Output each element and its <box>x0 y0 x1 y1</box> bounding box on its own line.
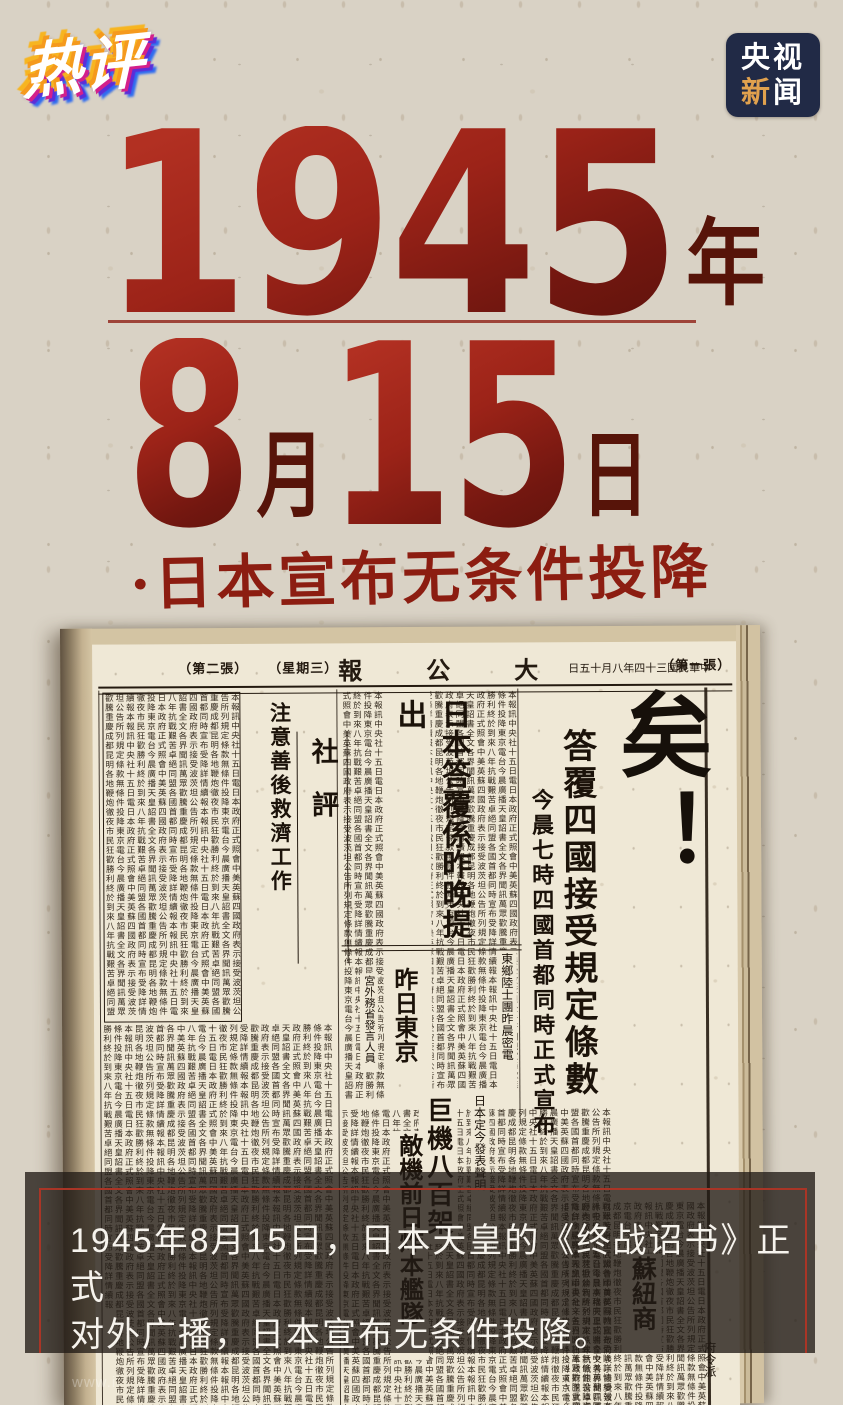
badge-line-1: 央视 <box>741 41 805 75</box>
editorial-box: 本報訊中央社十五日電日本政府正式照會中美英蘇四國政府表示接受波茨坦公告所列規定條… <box>102 692 242 1023</box>
caption-text: 1945年8月15日，日本天皇的《终战诏书》正式 对外广播，日本宣布无条件投降。 <box>70 1218 815 1359</box>
mid-rule <box>342 944 522 951</box>
subtitle-calligraphy: ·日本宣布无条件投降 <box>129 523 791 622</box>
masthead-title: 報公大 <box>338 650 602 686</box>
cctv-news-badge: 央视 新闻 <box>726 33 820 117</box>
masthead-sheet-one: （第一張） <box>661 654 731 673</box>
day-suffix: 日 <box>581 430 649 524</box>
masthead-weekday: （星期三） <box>268 657 338 676</box>
main-headline: 日本投降矣！ <box>592 687 740 1253</box>
caption-overlay: 1945年8月15日，日本天皇的《终战诏书》正式 对外广播，日本宣布无条件投降。 <box>25 1172 815 1353</box>
newsprint-filler: 本報訊中央社十五日電日本政府正式照會中美英蘇四國政府表示接受波茨坦公告所列規定條… <box>103 693 241 1022</box>
mid-small-col: 宮外務省發言人員 <box>360 973 379 1072</box>
caption-line-2: 对外广播，日本宣布无条件投降。 <box>70 1312 815 1359</box>
editorial-headline: 注意善後救濟工作 <box>264 702 295 952</box>
wire-small-col: 東鄉陸士團昨晨密電 <box>498 950 518 1119</box>
month-suffix: 月 <box>257 430 325 524</box>
month-number: 8 <box>126 338 249 538</box>
caption-line-1: 1945年8月15日，日本天皇的《终战诏书》正式 <box>70 1218 815 1312</box>
badge-accent-char: 新 <box>741 77 773 109</box>
badge-white-char: 闻 <box>773 77 805 109</box>
year-suffix: 年 <box>686 218 765 312</box>
badge-line-2: 新闻 <box>741 76 805 110</box>
city-subhead: 昨日東京 <box>386 965 424 1079</box>
masthead-sheet-label: （第二張） <box>178 658 248 677</box>
poster-background: 热评 央视 新闻 1945 年 8 月 15 日 ·日本宣布无条件投降 （第二張… <box>0 0 843 1405</box>
watermark: www.i <box>72 1374 116 1391</box>
day-number: 15 <box>327 338 574 538</box>
mid-headline: 日本答覆係昨晚提出 <box>386 699 475 949</box>
date-headline: 8 月 15 日 <box>126 338 652 538</box>
